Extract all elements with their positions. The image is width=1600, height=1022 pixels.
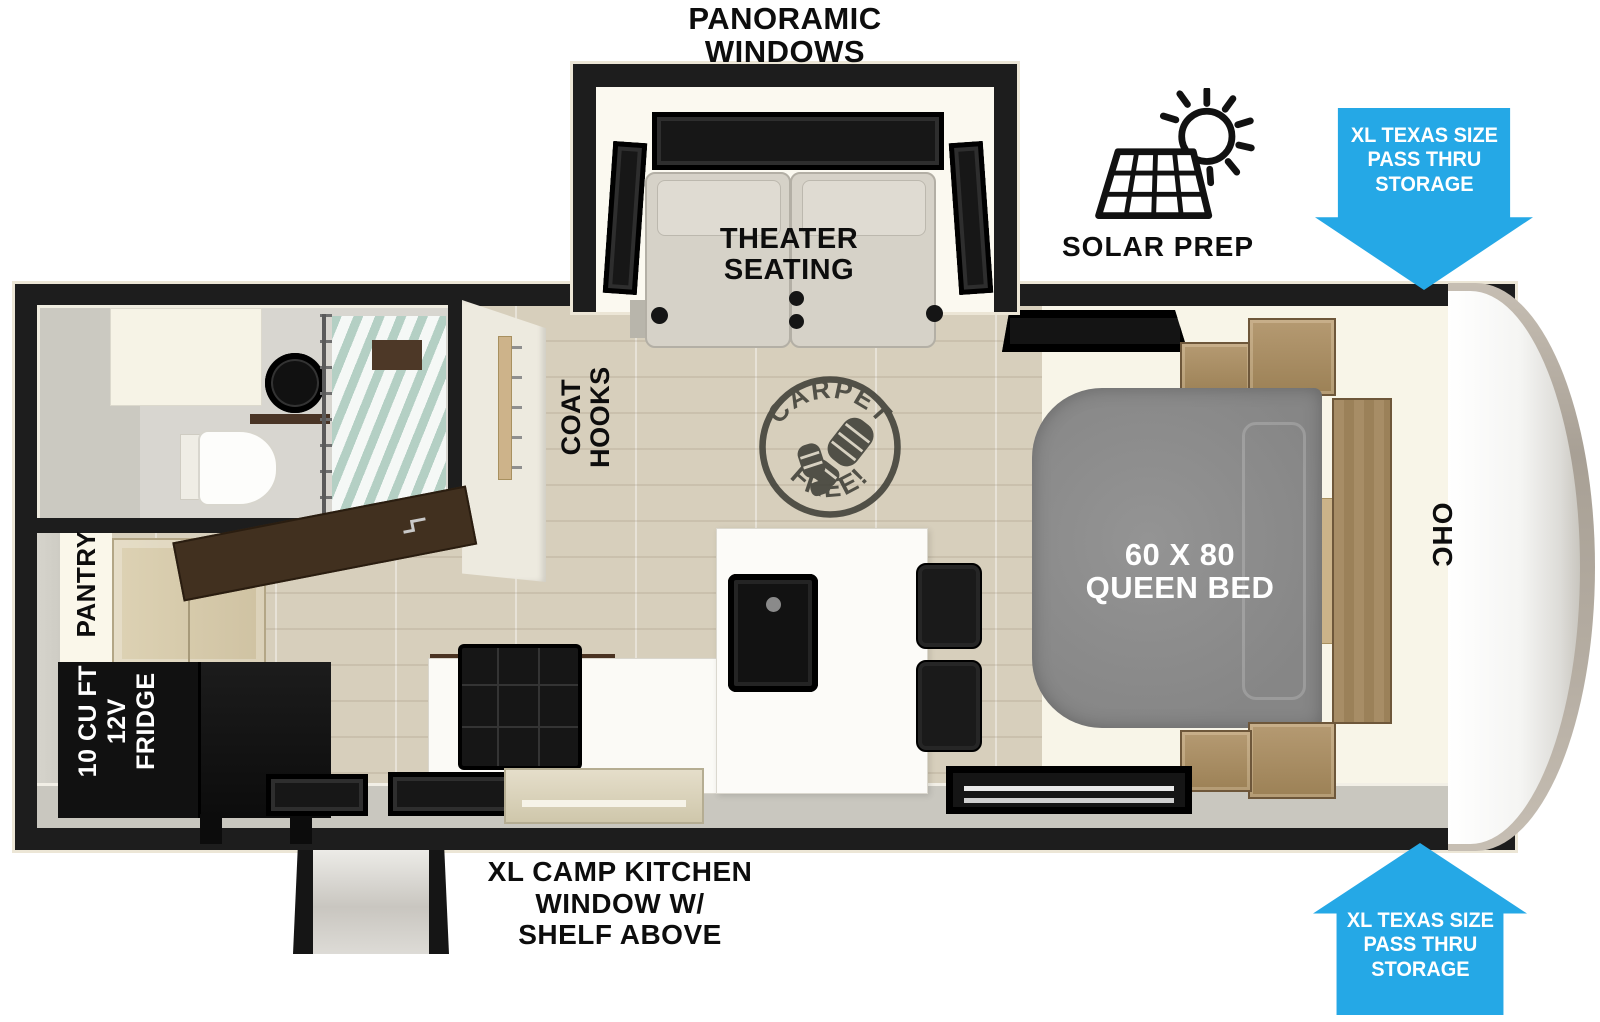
fridge-line2: 12V — [103, 646, 132, 796]
dinette-chair — [916, 563, 982, 649]
queen-bed-label: 60 X 80 QUEEN BED — [1040, 538, 1320, 605]
cooktop-stove — [458, 644, 582, 770]
theater-line1: THEATER — [658, 224, 920, 255]
vanity-backsplash — [250, 414, 330, 424]
camp-kitchen-slot — [522, 800, 686, 807]
fridge-label: 10 CU FT 12V FRIDGE — [74, 646, 160, 796]
arrow-top-line1: XL TEXAS SIZE — [1350, 124, 1497, 148]
bedroom-window-top — [1002, 310, 1188, 352]
shower-rod-bar — [322, 314, 326, 514]
rv-floorplan: PANORAMIC WINDOWS OHC COAT HOOKS — [0, 0, 1600, 1022]
panoramic-windows-line1: PANORAMIC — [545, 2, 1025, 35]
coat-hooks-label: COAT HOOKS — [557, 347, 615, 487]
dinette-chair — [916, 660, 982, 752]
wardrobe-top-right — [1248, 318, 1336, 396]
arrow-bottom-text: XL TEXAS SIZE PASS THRU STORAGE — [1346, 909, 1493, 982]
toilet-bowl — [198, 430, 278, 506]
exterior-window — [266, 774, 368, 816]
cupholder-dot — [651, 307, 668, 324]
coat-hook-rail — [498, 336, 512, 480]
fridge-leg — [290, 814, 312, 844]
coat-hook-pegs — [512, 346, 522, 476]
fridge-leg — [200, 814, 222, 844]
carpet-free-stamp: CARPET FREE! — [755, 372, 905, 522]
bedroom-window-bottom — [946, 766, 1192, 814]
sink-faucet — [766, 597, 781, 612]
solar-panel-icon — [1099, 152, 1209, 216]
camp-kitchen-unit — [504, 768, 704, 824]
bathroom-vanity — [110, 308, 262, 406]
bed-line1: 60 X 80 — [1040, 538, 1320, 571]
pass-thru-storage-arrow-bottom: XL TEXAS SIZE PASS THRU STORAGE — [1313, 843, 1527, 1015]
bed-line2: QUEEN BED — [1040, 571, 1320, 604]
entry-step — [293, 850, 449, 954]
panoramic-windows-label: PANORAMIC WINDOWS — [545, 2, 1025, 69]
fridge-line1: 10 CU FT — [74, 646, 103, 796]
wardrobe-bottom-right — [1248, 722, 1336, 799]
coat-hooks-line1: COAT — [557, 347, 586, 487]
solar-prep-icon — [1078, 88, 1268, 233]
ohc-label: OHC — [1427, 475, 1457, 595]
window-slat — [964, 798, 1174, 803]
arrow-top-text: XL TEXAS SIZE PASS THRU STORAGE — [1350, 124, 1497, 197]
camp-kitchen-label: XL CAMP KITCHEN WINDOW W/ SHELF ABOVE — [455, 856, 785, 951]
coat-hooks-line2: HOOKS — [586, 347, 615, 487]
camp-kitchen-line2: WINDOW W/ — [455, 888, 785, 920]
cupholder-dot — [926, 305, 943, 322]
theater-seating-label: THEATER SEATING — [658, 224, 920, 287]
arrow-bottom-line3: STORAGE — [1346, 958, 1493, 982]
fridge-line3: FRIDGE — [131, 646, 160, 796]
cupholder-dot — [789, 314, 804, 329]
entry-step-tread — [313, 850, 429, 954]
arrow-top-line3: STORAGE — [1350, 173, 1497, 197]
bathroom-sink — [265, 353, 325, 413]
camp-kitchen-line1: XL CAMP KITCHEN — [455, 856, 785, 888]
arrow-bottom-line1: XL TEXAS SIZE — [1346, 909, 1493, 933]
bed-headboard — [1332, 398, 1392, 724]
table-handle-icon — [399, 513, 432, 538]
kitchen-sink — [728, 574, 818, 692]
arrow-bottom-line2: PASS THRU — [1346, 933, 1493, 957]
panoramic-windows-line2: WINDOWS — [545, 35, 1025, 68]
cupholder-dot — [789, 291, 804, 306]
theater-line2: SEATING — [658, 255, 920, 286]
arrow-top-line2: PASS THRU — [1350, 148, 1497, 172]
window-slat — [964, 786, 1174, 791]
pantry-label: PANTRY — [72, 524, 100, 644]
pass-thru-storage-arrow-top: XL TEXAS SIZE PASS THRU STORAGE — [1315, 108, 1533, 290]
shower-shelf — [372, 340, 422, 370]
bay-window-center — [652, 112, 944, 170]
camp-kitchen-line3: SHELF ABOVE — [455, 919, 785, 951]
solar-prep-label: SOLAR PREP — [1018, 232, 1298, 262]
